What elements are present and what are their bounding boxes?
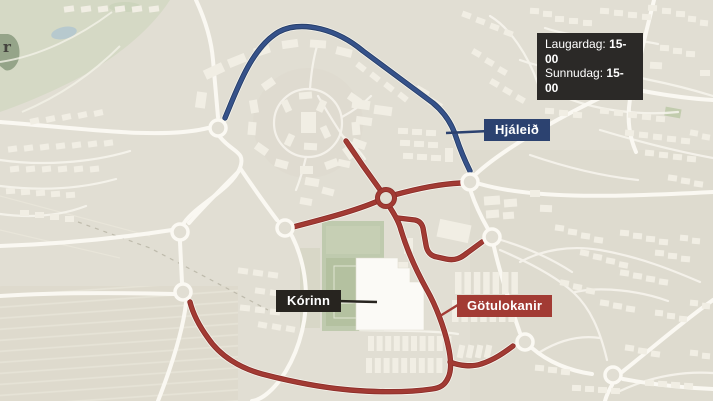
schedule-row: Laugardag: 15-00 xyxy=(545,37,637,66)
schedule-box: Laugardag: 15-00 Sunnudag: 15-00 xyxy=(537,33,643,100)
schedule-row: Sunnudag: 15-00 xyxy=(545,66,637,95)
venue-label: Kórinn xyxy=(276,290,341,312)
roundabout-central-closed xyxy=(378,190,395,207)
schedule-day: Sunnudag: xyxy=(545,66,603,80)
map-text-fragment: r xyxy=(3,38,12,56)
detour-label: Hjáleið xyxy=(484,119,550,141)
map-graphic: r xyxy=(0,0,713,401)
venue-label-connector xyxy=(335,301,377,302)
schedule-day: Laugardag: xyxy=(545,37,606,51)
closures-label: Götulokanir xyxy=(457,295,552,317)
